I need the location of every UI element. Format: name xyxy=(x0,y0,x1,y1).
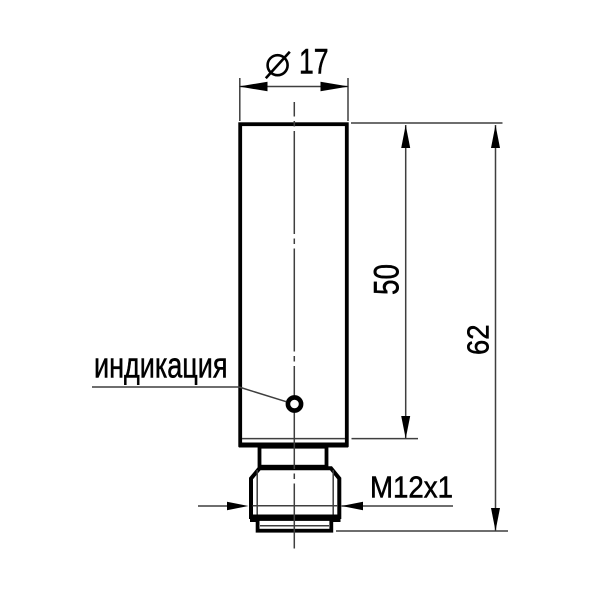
svg-text:17: 17 xyxy=(299,43,329,82)
svg-text:62: 62 xyxy=(461,325,496,356)
svg-text:M12x1: M12x1 xyxy=(370,470,453,505)
svg-text:индикация: индикация xyxy=(94,345,228,386)
svg-text:50: 50 xyxy=(368,264,407,295)
